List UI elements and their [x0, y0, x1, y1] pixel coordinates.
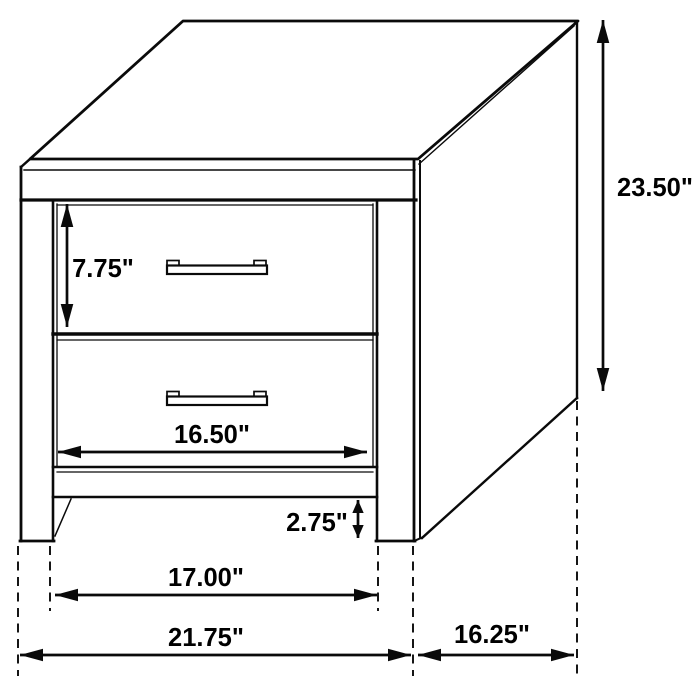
- dimension-labels: 7.75" 23.50" 16.50" 2.75" 17.00" 21.75" …: [72, 174, 693, 652]
- diagram-svg: 7.75" 23.50" 16.50" 2.75" 17.00" 21.75" …: [0, 0, 700, 700]
- top-drawer-handle: [167, 261, 267, 275]
- front-frame: [21, 161, 416, 541]
- table-top: [21, 21, 578, 170]
- nightstand-dimension-diagram: 7.75" 23.50" 16.50" 2.75" 17.00" 21.75" …: [0, 0, 700, 700]
- total-height-label: 23.50": [617, 174, 693, 202]
- overall-width-label: 21.75": [168, 624, 244, 652]
- drawer-height-label: 7.75": [72, 255, 134, 283]
- depth-label: 16.25": [454, 621, 530, 649]
- bottom-drawer-handle: [167, 392, 267, 406]
- drawer-width-label: 16.50": [174, 421, 250, 449]
- leg-span-label: 17.00": [168, 564, 244, 592]
- legs: [20, 499, 421, 541]
- side-panel: [420, 22, 577, 538]
- base-clearance-label: 2.75": [286, 509, 348, 537]
- dimension-arrows: [20, 20, 603, 655]
